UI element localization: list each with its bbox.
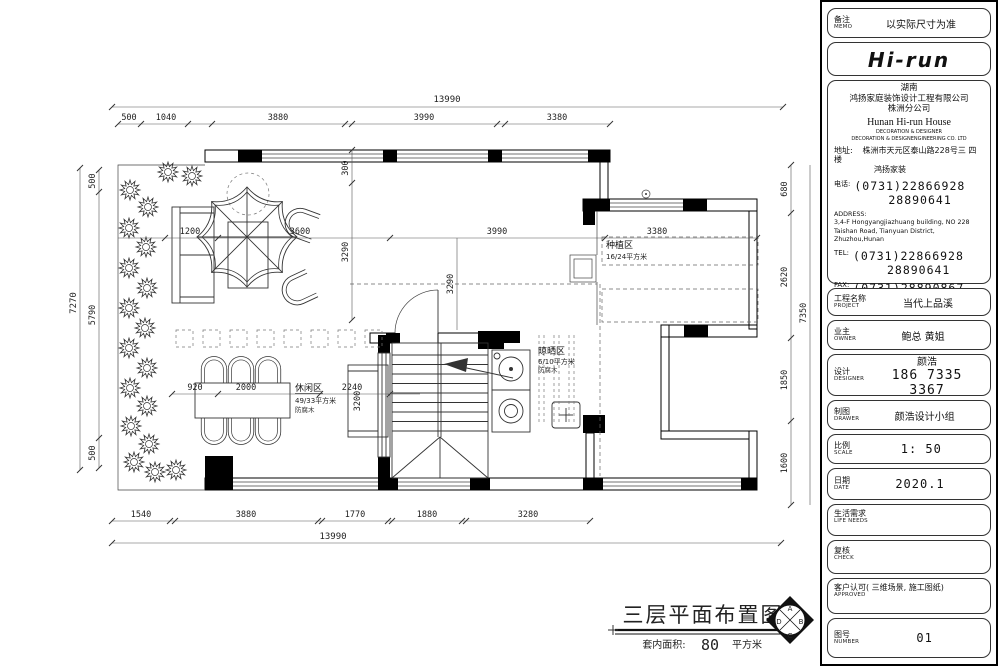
- floor-plan-svg: 种植区 16/24平方米 休闲区 49/33平方米 防腐木 晾晒区 6/10平方…: [0, 0, 820, 666]
- owner-value: 鲍总 黄姐: [862, 328, 984, 343]
- svg-text:1200: 1200: [180, 227, 200, 237]
- dining-set: [195, 357, 290, 445]
- title-block-panel: 备注 MEMO 以实际尺寸为准 Hi-run 湖南 鸿扬家庭装饰设计工程有限公司…: [820, 0, 998, 666]
- scale-box: 比例 SCALE 1: 50: [827, 434, 991, 464]
- planting-zone-label: 种植区: [606, 239, 633, 251]
- svg-text:13990: 13990: [319, 532, 346, 542]
- svg-text:16/24平方米: 16/24平方米: [606, 252, 647, 261]
- svg-text:3290: 3290: [446, 274, 456, 294]
- sheet-title: 三层平面布置图 套内面积: 80 平方米 A D B C: [608, 596, 814, 654]
- stair-steps: [392, 355, 488, 431]
- leisure-zone-label: 休闲区: [295, 382, 322, 394]
- area-label: 套内面积:: [642, 638, 685, 651]
- logo-box: Hi-run: [827, 42, 991, 76]
- svg-text:49/33平方米: 49/33平方米: [295, 396, 336, 405]
- svg-text:3380: 3380: [547, 113, 567, 123]
- svg-text:2000: 2000: [236, 383, 256, 393]
- project-box: 工程名称 PROJECT 当代上品溪: [827, 288, 991, 316]
- project-value: 当代上品溪: [872, 295, 984, 310]
- svg-text:7350: 7350: [799, 303, 809, 323]
- svg-text:3600: 3600: [290, 227, 310, 237]
- svg-text:A: A: [788, 605, 793, 613]
- svg-text:5790: 5790: [88, 305, 98, 325]
- life-needs-box: 生活需求 LIFE NEEDS: [827, 504, 991, 536]
- parasol-umbrella: [197, 187, 297, 288]
- date-value: 2020.1: [856, 477, 984, 491]
- plan-title: 三层平面布置图: [623, 603, 784, 627]
- svg-text:500: 500: [88, 173, 98, 188]
- company-logo: Hi-run: [834, 45, 984, 72]
- svg-text:1600: 1600: [780, 453, 790, 473]
- stair-direction-arrow: [444, 358, 468, 372]
- svg-text:6/10平方米: 6/10平方米: [538, 357, 575, 366]
- svg-text:3990: 3990: [487, 227, 507, 237]
- svg-text:7270: 7270: [69, 292, 79, 314]
- memo-value: 以实际尺寸为准: [858, 16, 984, 31]
- kitchen-area: [492, 335, 580, 432]
- svg-text:C: C: [788, 632, 793, 640]
- svg-text:3990: 3990: [414, 113, 434, 123]
- company-box: 湖南 鸿扬家庭装饰设计工程有限公司 株洲分公司 Hunan Hi-run Hou…: [827, 80, 991, 284]
- area-value: 80: [701, 636, 719, 654]
- stove-counter: [492, 390, 530, 432]
- svg-text:300: 300: [341, 160, 351, 175]
- designer-name: 颜浩: [870, 353, 984, 368]
- designer-phone: 186 7335 3367: [870, 368, 984, 398]
- svg-text:1040: 1040: [156, 113, 176, 123]
- drying-zone-label: 晾晒区: [538, 345, 565, 357]
- svg-text:3200: 3200: [353, 391, 363, 411]
- cad-sheet: 种植区 16/24平方米 休闲区 49/33平方米 防腐木 晾晒区 6/10平方…: [0, 0, 1000, 666]
- svg-text:B: B: [799, 618, 804, 626]
- umbrella-table: [228, 222, 268, 288]
- date-box: 日期 DATE 2020.1: [827, 468, 991, 500]
- svg-text:3880: 3880: [268, 113, 288, 123]
- svg-text:3380: 3380: [647, 227, 667, 237]
- sheet-number: 01: [865, 631, 984, 645]
- door-swing-arc: [395, 290, 438, 333]
- svg-text:防腐木: 防腐木: [538, 365, 558, 374]
- svg-text:1880: 1880: [417, 510, 437, 520]
- svg-text:D: D: [776, 618, 781, 626]
- svg-text:1770: 1770: [345, 510, 365, 520]
- svg-text:防腐木: 防腐木: [295, 405, 315, 414]
- approved-box: 客户认可( 三维场景, 施工图纸) APPROVED: [827, 578, 991, 614]
- drawer-value: 颜浩设计小组: [865, 408, 984, 423]
- svg-text:3290: 3290: [341, 242, 351, 262]
- memo-box: 备注 MEMO 以实际尺寸为准: [827, 8, 991, 38]
- check-box: 复核 CHECK: [827, 540, 991, 574]
- svg-text:3280: 3280: [518, 510, 538, 520]
- svg-text:680: 680: [780, 181, 790, 196]
- faucet-icon: [494, 353, 500, 359]
- designer-box: 设计 DESIGNER 颜浩 186 7335 3367: [827, 354, 991, 396]
- svg-text:13990: 13990: [433, 95, 460, 105]
- number-box: 图号 NUMBER 01: [827, 618, 991, 658]
- svg-text:3880: 3880: [236, 510, 256, 520]
- terrace-sofa: [172, 207, 214, 303]
- drawer-box: 制图 DRAWER 颜浩设计小组: [827, 400, 991, 430]
- area-unit: 平方米: [732, 638, 762, 651]
- paving-squares: [176, 330, 382, 347]
- svg-text:500: 500: [121, 113, 136, 123]
- burner-icon: [499, 399, 523, 423]
- svg-text:1540: 1540: [131, 510, 151, 520]
- trees: [119, 162, 202, 482]
- owner-box: 业主 OWNER 鲍总 黄姐: [827, 320, 991, 350]
- staircase: [378, 290, 513, 478]
- svg-text:1850: 1850: [780, 370, 790, 390]
- svg-text:2620: 2620: [780, 267, 790, 287]
- svg-text:920: 920: [187, 383, 202, 393]
- svg-text:500: 500: [88, 445, 98, 460]
- scale-value: 1: 50: [859, 442, 984, 456]
